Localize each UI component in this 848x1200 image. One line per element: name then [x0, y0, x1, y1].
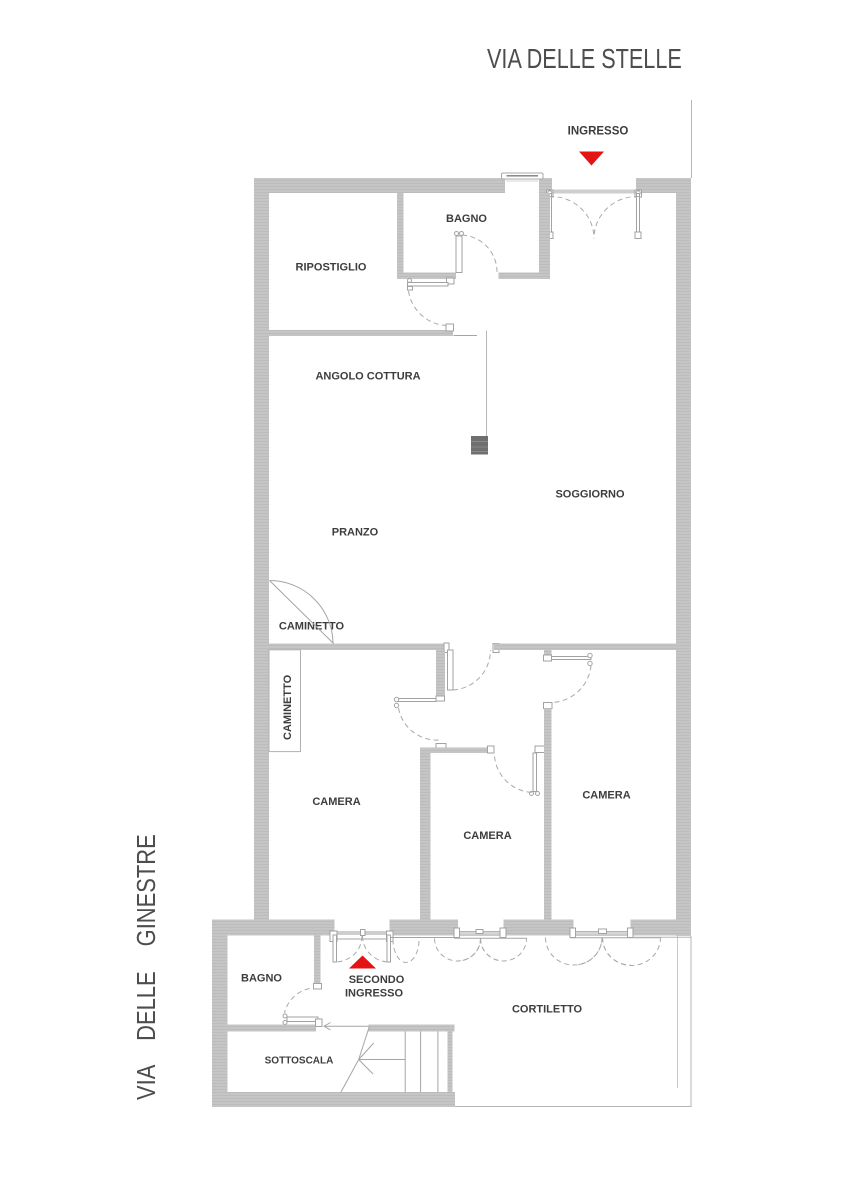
- svg-text:BAGNO: BAGNO: [446, 213, 487, 225]
- svg-text:SECONDO: SECONDO: [349, 974, 405, 986]
- svg-text:SOGGIORNO: SOGGIORNO: [555, 489, 625, 501]
- svg-text:BAGNO: BAGNO: [241, 973, 282, 985]
- svg-text:CAMERA: CAMERA: [582, 790, 630, 802]
- svg-text:CAMERA: CAMERA: [463, 830, 511, 842]
- svg-text:VIA DELLE STELLE: VIA DELLE STELLE: [487, 45, 682, 75]
- svg-text:RIPOSTIGLIO: RIPOSTIGLIO: [296, 262, 367, 274]
- svg-text:PRANZO: PRANZO: [332, 527, 379, 539]
- svg-text:VIA DELLE GINESTRE: VIA DELLE GINESTRE: [132, 834, 161, 1100]
- svg-text:CORTILETTO: CORTILETTO: [512, 1004, 583, 1016]
- svg-text:CAMERA: CAMERA: [312, 796, 360, 808]
- svg-text:SOTTOSCALA: SOTTOSCALA: [265, 1056, 334, 1067]
- svg-text:INGRESSO: INGRESSO: [568, 126, 629, 138]
- svg-text:CAMINETTO: CAMINETTO: [282, 674, 294, 740]
- svg-text:INGRESSO: INGRESSO: [345, 988, 404, 1000]
- svg-text:ANGOLO COTTURA: ANGOLO COTTURA: [315, 371, 420, 383]
